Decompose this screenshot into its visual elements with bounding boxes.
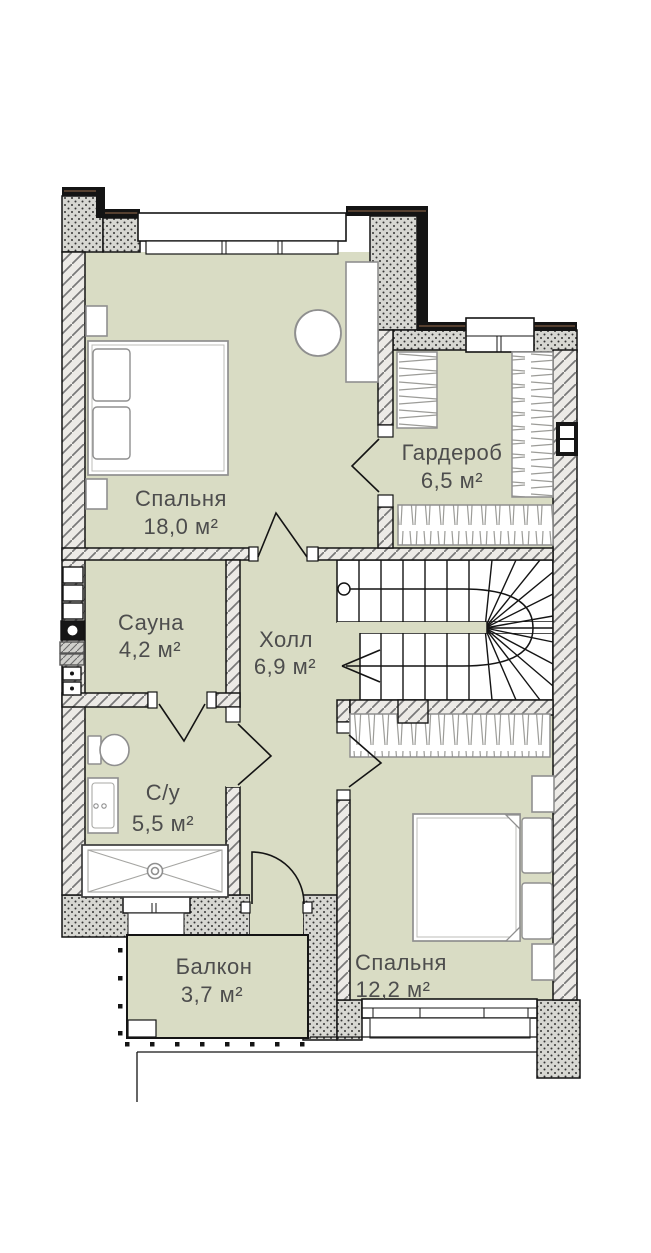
room-label-hall-area: 6,9 м² [254, 654, 316, 679]
room-label-hall-name: Холл [259, 627, 313, 652]
pillow [93, 407, 130, 459]
pillow [93, 349, 130, 401]
stairs-upper-flight [337, 560, 553, 622]
room-label-bathroom-area: 5,5 м² [132, 811, 194, 836]
ventilation-shafts-left [60, 567, 84, 695]
nightstand [532, 944, 554, 980]
nightstand [532, 776, 554, 812]
wardrobe-shelf-right [512, 352, 553, 497]
room-hall-floor [238, 548, 337, 937]
window-wardrobe [466, 318, 534, 352]
pillow [522, 883, 552, 939]
room-label-sauna-area: 4,2 м² [119, 637, 181, 662]
nightstand [86, 306, 107, 336]
room-label-wardrobe-name: Гардероб [402, 440, 503, 465]
stairs-center-strip [337, 622, 487, 633]
window-bedroom-1 [138, 213, 346, 254]
room-label-bedroom-1-area: 18,0 м² [144, 514, 219, 539]
floor-plan-page: Спальня 18,0 м² Гардероб 6,5 м² Сауна 4,… [0, 0, 651, 1253]
room-label-bathroom-name: С/у [146, 780, 181, 805]
sink-icon [88, 778, 118, 833]
stairs-start-circle [338, 583, 350, 595]
nightstand [86, 479, 107, 509]
room-label-wardrobe-area: 6,5 м² [421, 468, 483, 493]
shower-tray-icon [82, 845, 228, 897]
wardrobe-shelf-bottom [398, 505, 553, 545]
room-label-balcony-name: Балкон [176, 954, 253, 979]
window-bathroom [123, 895, 190, 937]
toilet-icon [88, 735, 129, 766]
floor-plan-canvas: Спальня 18,0 м² Гардероб 6,5 м² Сауна 4,… [0, 0, 651, 1253]
stairs [337, 560, 553, 700]
wardrobe-shelf-left [397, 352, 437, 428]
room-label-bedroom-2-area: 12,2 м² [356, 977, 431, 1002]
room-label-sauna-name: Сауна [118, 610, 184, 635]
room-label-balcony-area: 3,7 м² [181, 982, 243, 1007]
pillow [522, 818, 552, 873]
window-bedroom-2 [362, 999, 537, 1038]
corner-pier [537, 1000, 580, 1078]
room-label-bedroom-1-name: Спальня [135, 486, 227, 511]
ventilation-shaft-right [556, 422, 578, 456]
desk [346, 262, 378, 382]
closet [350, 714, 550, 757]
bedroom-2-window-sill [370, 1018, 530, 1038]
wall-stub [398, 700, 428, 723]
room-label-bedroom-2-name: Спальня [355, 950, 447, 975]
balcony-step [128, 1020, 156, 1037]
bathroom-window-sill [128, 913, 184, 937]
terrace-edge-lines [137, 1037, 537, 1102]
